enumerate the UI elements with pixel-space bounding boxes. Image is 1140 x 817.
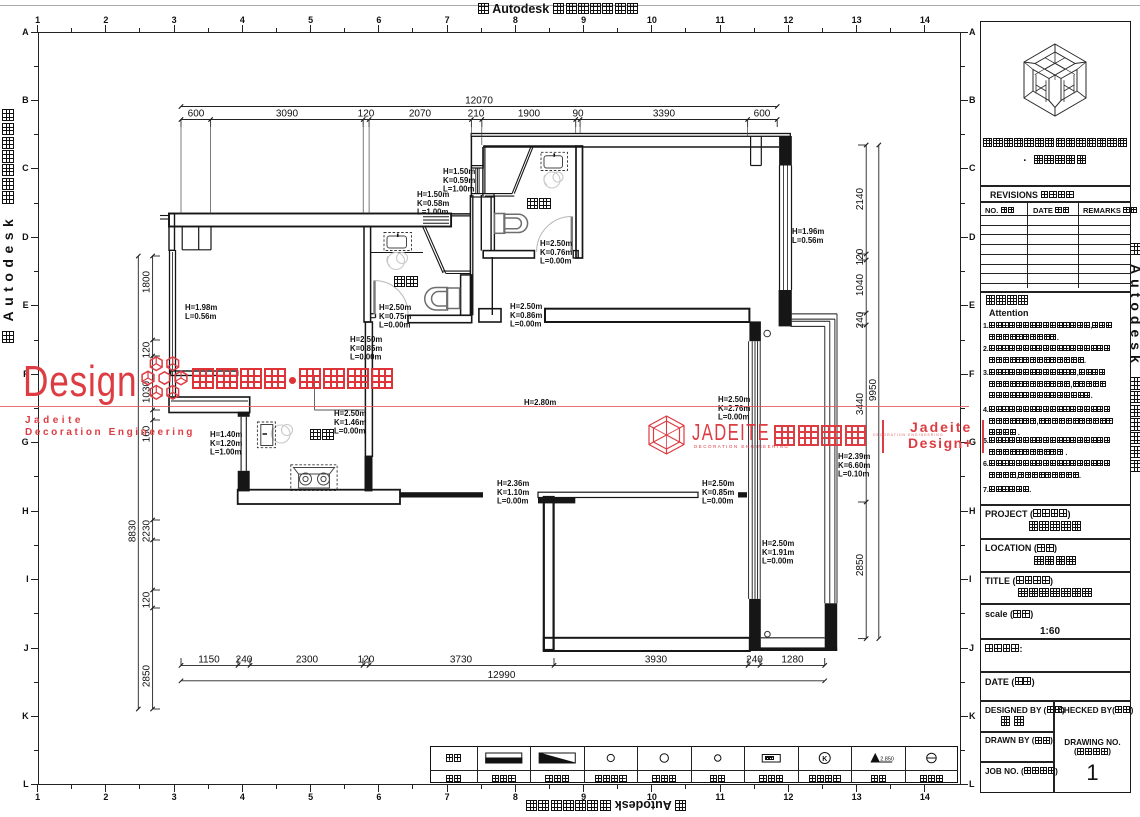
svg-text:L=0.00m: L=0.00m [334, 427, 365, 436]
svg-text:L=0.10m: L=0.10m [838, 470, 869, 479]
svg-text:K=1.10m: K=1.10m [497, 488, 529, 497]
svg-text:240: 240 [855, 311, 866, 328]
svg-text:H=2.39m: H=2.39m [838, 452, 870, 461]
svg-text:120: 120 [142, 591, 153, 608]
svg-text:H=2.50m: H=2.50m [702, 479, 734, 488]
svg-text:H=2.36m: H=2.36m [497, 479, 529, 488]
svg-text:K=0.76m: K=0.76m [540, 248, 572, 257]
svg-text:12990: 12990 [488, 670, 516, 681]
svg-text:H=2.50m: H=2.50m [540, 239, 572, 248]
svg-text:L=0.00m: L=0.00m [350, 353, 381, 362]
svg-text:90: 90 [572, 109, 584, 120]
svg-text:K=0.59m: K=0.59m [443, 176, 475, 185]
svg-text:H=1.40m: H=1.40m [210, 430, 242, 439]
svg-text:240: 240 [236, 654, 253, 665]
svg-text:K=0.75m: K=0.75m [379, 312, 411, 321]
svg-text:H=2.50m: H=2.50m [379, 303, 411, 312]
svg-text:1150: 1150 [198, 654, 220, 665]
svg-text:600: 600 [754, 109, 771, 120]
svg-text:K=0.85m: K=0.85m [702, 488, 734, 497]
svg-text:H=2.50m: H=2.50m [334, 409, 366, 418]
svg-text:2070: 2070 [409, 109, 432, 120]
svg-text:H=1.50m: H=1.50m [417, 190, 449, 199]
svg-text:3090: 3090 [276, 109, 299, 120]
svg-text:L=0.00m: L=0.00m [497, 497, 528, 506]
svg-text:120: 120 [855, 248, 866, 265]
svg-text:H=1.50m: H=1.50m [443, 167, 475, 176]
svg-text:K=6.60m: K=6.60m [838, 461, 870, 470]
svg-text:3390: 3390 [653, 109, 676, 120]
svg-text:120: 120 [358, 654, 375, 665]
svg-text:H=2.50m: H=2.50m [762, 539, 794, 548]
svg-text:210: 210 [468, 109, 485, 120]
svg-text:K=0.85m: K=0.85m [350, 344, 382, 353]
svg-text:2850: 2850 [855, 553, 866, 576]
svg-text:2300: 2300 [296, 654, 319, 665]
svg-text:9950: 9950 [868, 378, 879, 401]
svg-text:3930: 3930 [645, 654, 668, 665]
svg-text:2140: 2140 [855, 187, 866, 210]
svg-text:L=0.00m: L=0.00m [762, 557, 793, 566]
svg-text:H=2.50m: H=2.50m [718, 395, 750, 404]
svg-text:H=1.98m: H=1.98m [185, 303, 217, 312]
svg-text:240: 240 [746, 654, 763, 665]
svg-text:3440: 3440 [855, 392, 866, 415]
svg-text:L=0.00m: L=0.00m [379, 321, 410, 330]
svg-text:L=0.56m: L=0.56m [185, 312, 216, 321]
svg-text:L=0.00m: L=0.00m [702, 497, 733, 506]
svg-text:1900: 1900 [518, 109, 541, 120]
svg-text:1280: 1280 [781, 654, 804, 665]
svg-text:3730: 3730 [450, 654, 473, 665]
svg-text:12070: 12070 [465, 95, 493, 106]
svg-text:K=1.91m: K=1.91m [762, 548, 794, 557]
svg-text:H=2.50m: H=2.50m [510, 302, 542, 311]
svg-text:600: 600 [188, 109, 205, 120]
svg-text:2850: 2850 [142, 664, 153, 687]
svg-text:K=1.20m: K=1.20m [210, 439, 242, 448]
svg-text:L=0.00m: L=0.00m [540, 257, 571, 266]
svg-text:1800: 1800 [142, 270, 153, 293]
svg-text:K=0.58m: K=0.58m [417, 199, 449, 208]
svg-text:8830: 8830 [127, 519, 138, 542]
svg-text:2230: 2230 [142, 519, 153, 542]
svg-text:L=0.56m: L=0.56m [792, 236, 823, 245]
svg-text:L=1.00m: L=1.00m [210, 448, 241, 457]
svg-text:L=0.00m: L=0.00m [510, 320, 541, 329]
svg-text:1040: 1040 [855, 273, 866, 296]
svg-text:L=1.00m: L=1.00m [417, 208, 448, 217]
svg-text:K=0.86m: K=0.86m [510, 311, 542, 320]
svg-text:H=1.96m: H=1.96m [792, 227, 824, 236]
svg-text:H=2.50m: H=2.50m [350, 335, 382, 344]
svg-text:K=1.46m: K=1.46m [334, 418, 366, 427]
svg-text:120: 120 [358, 109, 375, 120]
